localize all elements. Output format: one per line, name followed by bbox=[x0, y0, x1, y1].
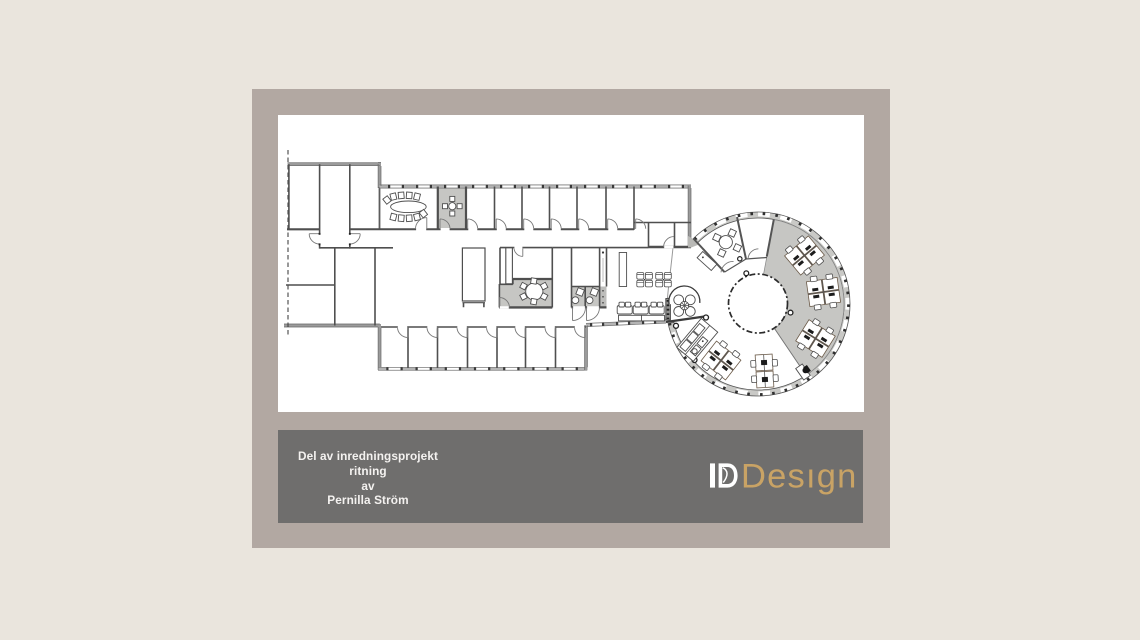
svg-text:Desıgn: Desıgn bbox=[741, 458, 858, 496]
